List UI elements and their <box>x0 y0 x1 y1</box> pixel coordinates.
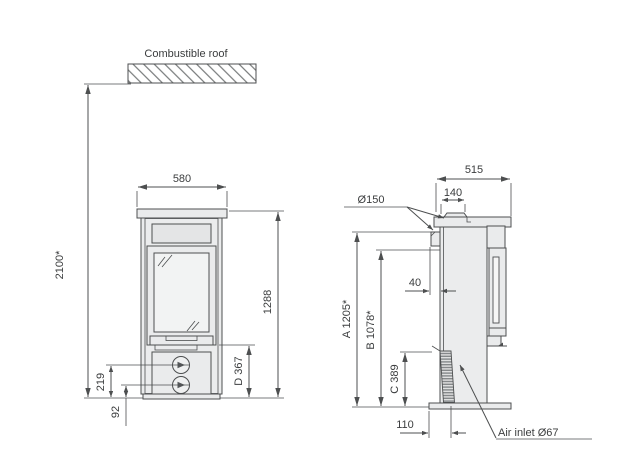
top-plate-front <box>137 209 227 218</box>
roof-hatch <box>128 64 256 83</box>
stove-front-view <box>137 209 227 399</box>
door-step-block <box>487 336 501 346</box>
dim-text-2100: 2100* <box>54 250 66 279</box>
stove-dimension-drawing: Combustible roof 2100* <box>0 0 624 460</box>
door-glass-side <box>493 257 499 323</box>
dim-219: 219 <box>95 366 111 397</box>
technical-drawing-canvas: Combustible roof 2100* <box>0 0 624 460</box>
door-bottom-rail <box>489 328 506 336</box>
roof-assembly: Combustible roof <box>128 48 256 83</box>
dim-a1205: A 1205* <box>341 232 431 406</box>
base-plate-side <box>429 403 511 409</box>
dim-c389: C 389 <box>389 352 432 406</box>
dim-text-o150: Ø150 <box>358 194 385 206</box>
dim-text-580: 580 <box>173 173 191 185</box>
roof-label: Combustible roof <box>144 48 228 60</box>
dim-text-92: 92 <box>110 406 122 418</box>
dim-text-110: 110 <box>396 419 414 431</box>
dim-b1078: B 1078* <box>365 250 440 406</box>
dim-text-b1078: B 1078* <box>365 310 377 350</box>
dim-air-inlet-offset: 110 <box>396 406 466 438</box>
dim-text-a1205: A 1205* <box>341 299 353 338</box>
door-top-filler <box>487 226 505 248</box>
duct-top-bevel <box>432 346 440 351</box>
dim-text-219: 219 <box>95 373 107 391</box>
stove-side-view <box>429 213 511 409</box>
base-front <box>143 394 220 399</box>
dim-text-1288: 1288 <box>262 290 274 314</box>
air-inlet-text: Air inlet Ø67 <box>498 427 559 439</box>
dim-text-515: 515 <box>465 164 483 176</box>
flue-collar-seat <box>444 213 467 217</box>
dim-92: 92 <box>110 386 126 426</box>
dim-text-140: 140 <box>444 187 462 199</box>
door-glass <box>154 253 209 332</box>
dim-text-c389: C 389 <box>389 364 401 393</box>
dim-front-width: 580 <box>137 173 227 207</box>
label-flue-diameter: Ø150 <box>344 194 444 230</box>
dim-d367: D 367 <box>219 345 255 397</box>
dim-text-40: 40 <box>409 277 421 289</box>
dim-text-d367: D 367 <box>233 356 245 385</box>
upper-panel <box>152 224 211 243</box>
dim-flue-offset: 140 <box>441 187 465 214</box>
